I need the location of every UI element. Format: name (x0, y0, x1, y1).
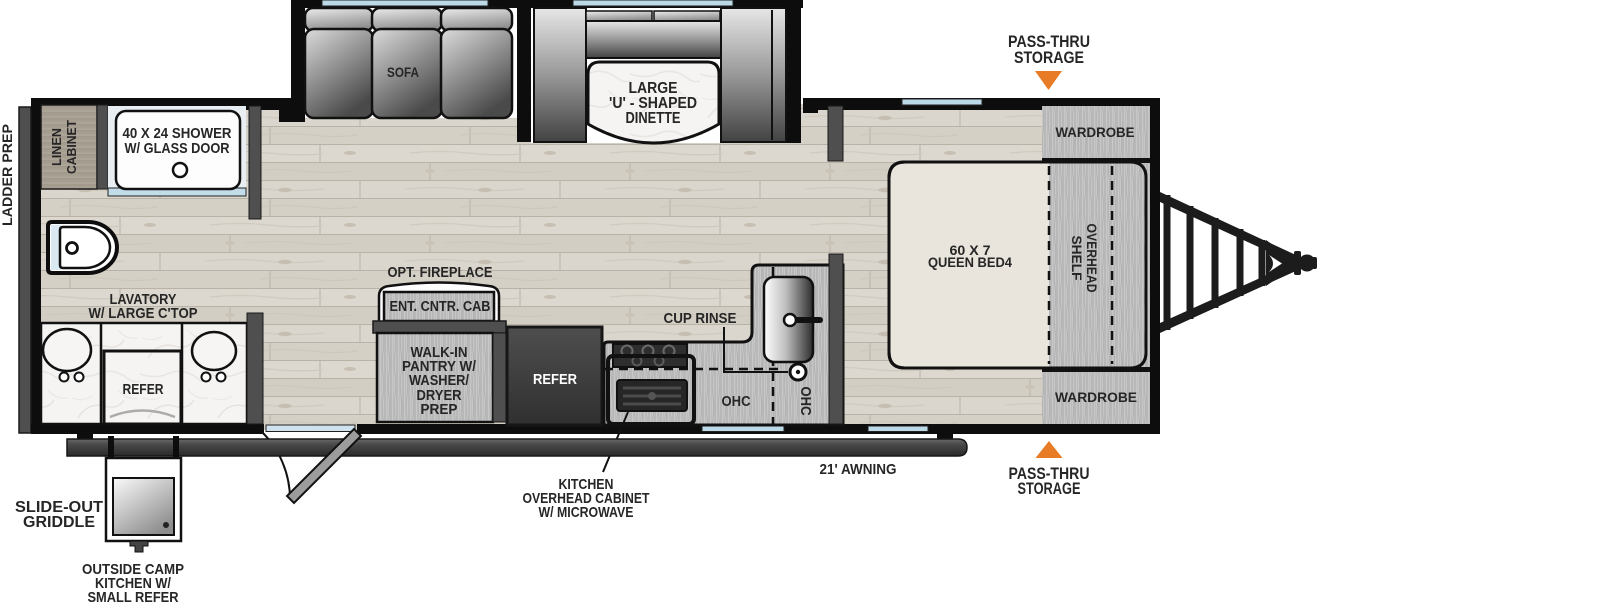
svg-text:PREP: PREP (421, 402, 458, 418)
svg-text:ENT. CNTR. CAB: ENT. CNTR. CAB (390, 299, 491, 315)
svg-text:REFER: REFER (123, 381, 164, 398)
svg-text:SHELF: SHELF (1069, 236, 1085, 281)
svg-text:OPT. FIREPLACE: OPT. FIREPLACE (388, 264, 493, 281)
svg-text:QUEEN BED4: QUEEN BED4 (928, 254, 1012, 270)
svg-text:LADDER PREP: LADDER PREP (0, 124, 15, 226)
svg-text:W/ MICROWAVE: W/ MICROWAVE (539, 504, 634, 521)
svg-text:REFER: REFER (533, 371, 577, 388)
svg-text:W/ LARGE C'TOP: W/ LARGE C'TOP (89, 305, 198, 322)
svg-text:21' AWNING: 21' AWNING (820, 461, 897, 478)
svg-text:CABINET: CABINET (64, 120, 79, 174)
svg-text:WARDROBE: WARDROBE (1056, 124, 1135, 140)
svg-text:WARDROBE: WARDROBE (1055, 389, 1137, 405)
svg-text:CUP RINSE: CUP RINSE (664, 310, 737, 327)
svg-text:SMALL REFER: SMALL REFER (88, 589, 179, 603)
svg-text:OHC: OHC (722, 394, 751, 410)
svg-text:GRIDDLE: GRIDDLE (23, 514, 95, 531)
svg-text:LINEN: LINEN (49, 128, 64, 166)
svg-text:W/ GLASS DOOR: W/ GLASS DOOR (125, 140, 230, 157)
svg-text:SOFA: SOFA (387, 64, 419, 80)
svg-text:STORAGE: STORAGE (1018, 479, 1081, 498)
svg-text:WASHER/: WASHER/ (409, 373, 469, 389)
svg-text:OHC: OHC (797, 387, 813, 416)
svg-text:OVERHEAD: OVERHEAD (1084, 224, 1100, 293)
svg-text:STORAGE: STORAGE (1014, 48, 1084, 67)
svg-text:DINETTE: DINETTE (626, 110, 681, 127)
